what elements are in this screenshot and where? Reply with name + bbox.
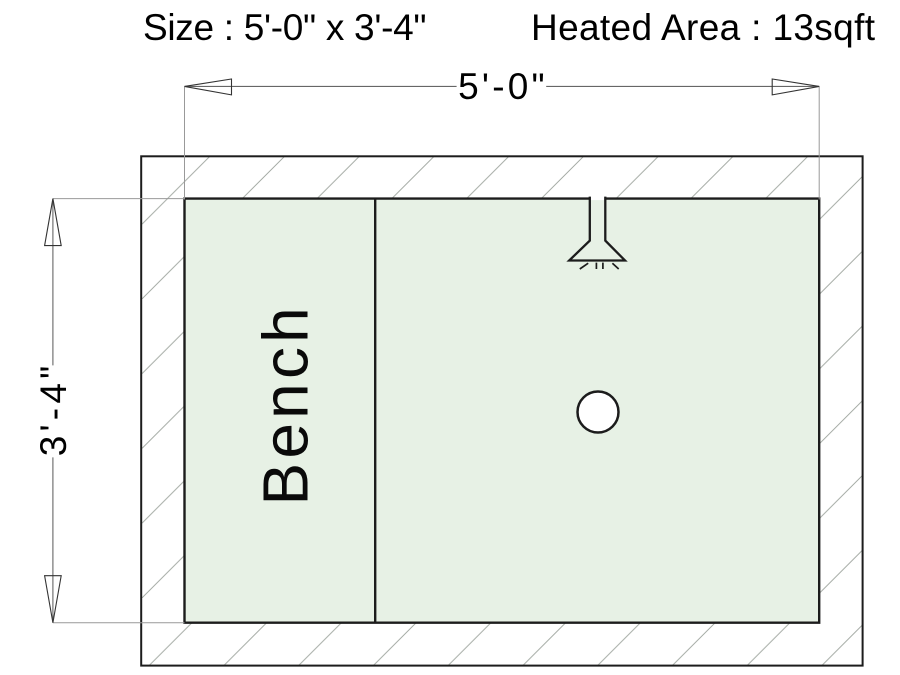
svg-text:Bench: Bench [250,303,322,505]
svg-text:3'-4": 3'-4" [33,362,74,457]
svg-text:Heated Area : 13sqft: Heated Area : 13sqft [531,7,876,48]
svg-text:Size : 5'-0" x 3'-4": Size : 5'-0" x 3'-4" [143,7,426,48]
svg-text:5'-0": 5'-0" [458,66,548,107]
